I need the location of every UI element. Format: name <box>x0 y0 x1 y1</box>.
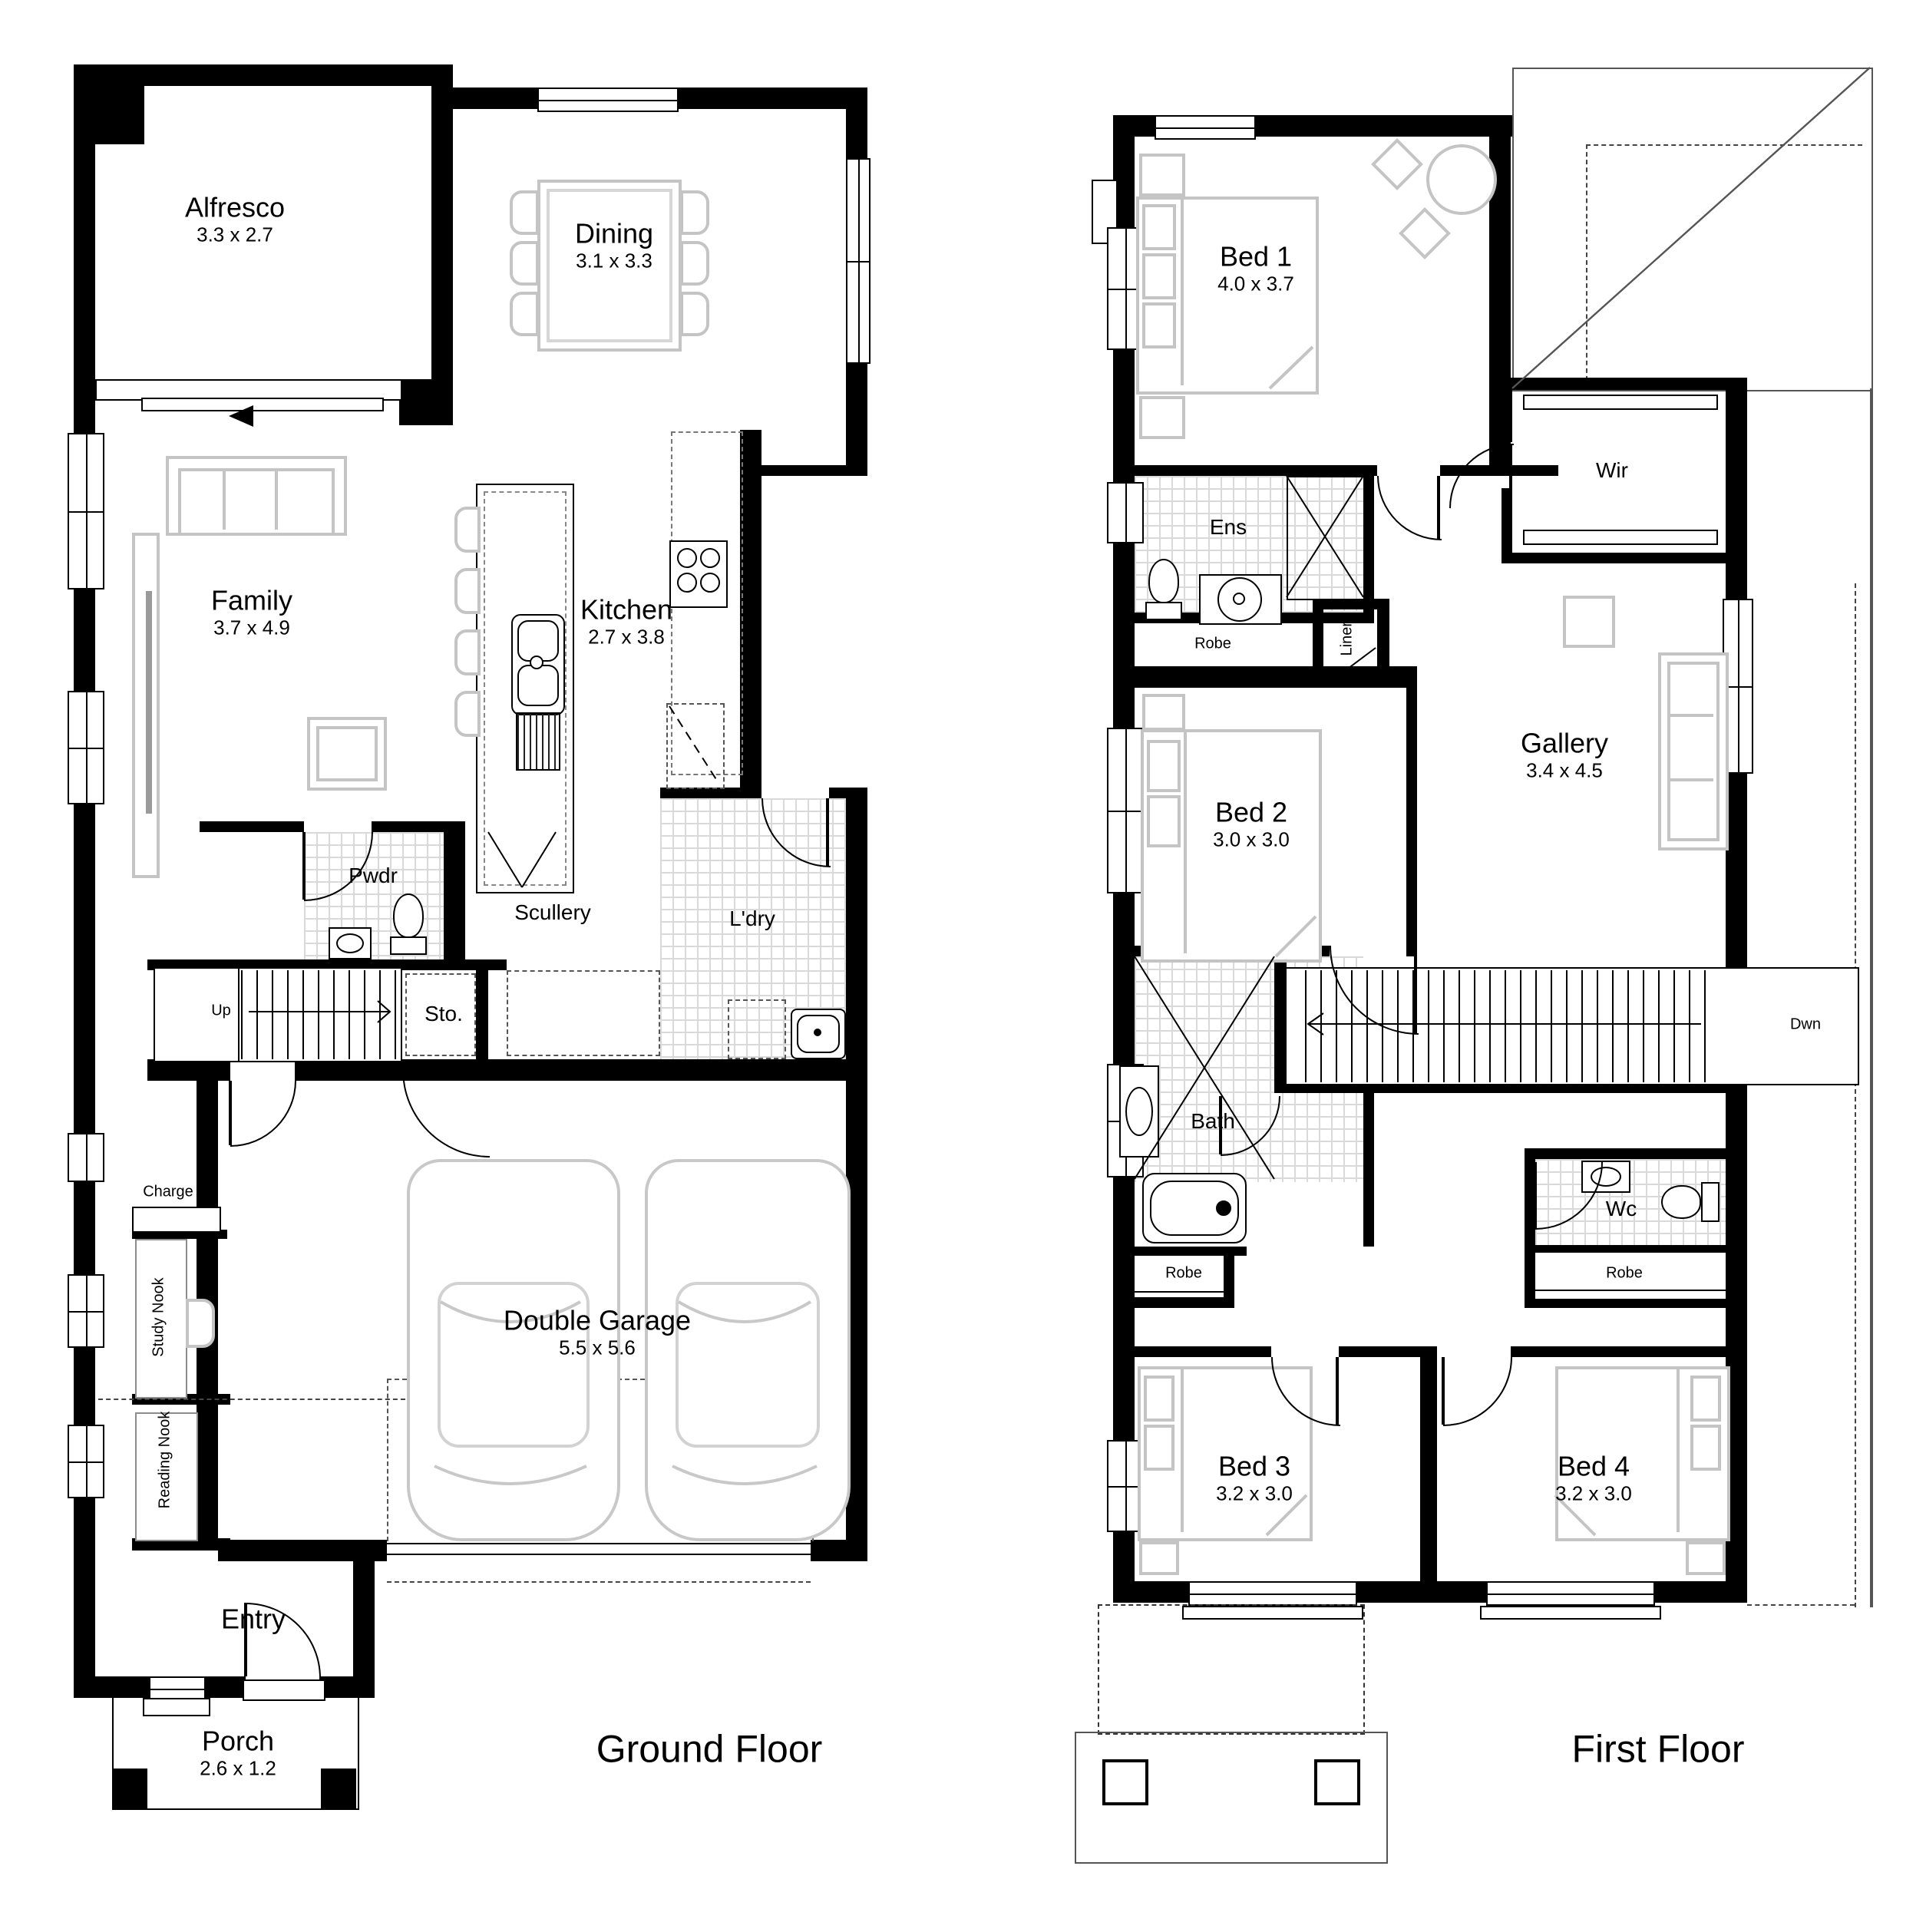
window-sill <box>1480 1606 1661 1620</box>
first-floor-plan: Bed 14.0 x 3.7 Wir Ens Robe Linen Bed 23… <box>0 0 1926 1932</box>
window <box>1107 728 1144 893</box>
kitchen-size: 2.7 x 3.8 <box>580 626 672 649</box>
roof-dashed-line <box>1855 583 1856 1607</box>
robe-label: Robe <box>1606 1266 1643 1283</box>
charge-station-label: Charge St. <box>143 1184 216 1202</box>
robe-label: Robe <box>1194 636 1231 654</box>
couch-seat <box>1667 662 1720 841</box>
roof-edge-line <box>1870 388 1872 1607</box>
garage-size: 5.5 x 5.6 <box>504 1337 691 1360</box>
pillow <box>1690 1425 1721 1471</box>
door-leaf <box>1336 1357 1339 1425</box>
door-leaf <box>1414 946 1417 1033</box>
wall <box>1377 599 1389 677</box>
wall <box>1339 1346 1420 1357</box>
pillow <box>1147 740 1181 792</box>
wall <box>1113 1346 1271 1357</box>
scullery-label: Scullery <box>514 900 591 924</box>
bed2-size: 3.0 x 3.0 <box>1213 829 1290 852</box>
up-label: Up <box>211 1003 231 1021</box>
reading-nook-label: Reading Nook <box>157 1412 175 1509</box>
alfresco-label: Alfresco <box>185 192 285 223</box>
gallery-label: Gallery <box>1521 728 1608 759</box>
tap-icon <box>1233 593 1245 605</box>
wall <box>1313 599 1323 677</box>
vanity-basin <box>1125 1087 1153 1136</box>
wall <box>1113 465 1377 476</box>
wc-label: Wc <box>1606 1196 1637 1220</box>
shower <box>1287 476 1366 600</box>
door-arc <box>1377 476 1442 540</box>
wall <box>1525 1148 1747 1159</box>
bedside-table <box>1139 154 1185 197</box>
wall <box>1525 1245 1726 1253</box>
robe-label: Robe <box>1165 1266 1202 1283</box>
bath-label: Bath <box>1191 1108 1235 1133</box>
wall <box>1511 1346 1747 1357</box>
dwn-label: Dwn <box>1790 1017 1821 1035</box>
porch-label: Porch <box>200 1726 276 1757</box>
pillow <box>1147 795 1181 847</box>
wall <box>1501 378 1747 390</box>
bed2-label: Bed 2 <box>1213 797 1290 828</box>
bed3-label: Bed 3 <box>1216 1451 1293 1482</box>
roof-dashed-line <box>1586 144 1587 388</box>
drain-icon <box>1216 1200 1231 1216</box>
bed3-size: 3.2 x 3.0 <box>1216 1483 1293 1506</box>
window <box>1188 1581 1357 1606</box>
porch-post <box>1314 1759 1360 1805</box>
wall <box>1274 956 1287 1093</box>
pwdr-label: Pwdr <box>349 863 398 887</box>
roof-dashed-line <box>1747 1604 1855 1606</box>
wall <box>1363 1082 1374 1247</box>
plan-canvas: Alfresco3.3 x 2.7 Dining3.1 x 3.3 Family… <box>0 0 1926 1932</box>
dining-size: 3.1 x 3.3 <box>575 250 653 273</box>
family-label: Family <box>211 585 292 616</box>
study-nook-label: Study Nook <box>151 1277 169 1356</box>
bed4-label: Bed 4 <box>1555 1451 1632 1482</box>
wall <box>1501 553 1747 563</box>
floor-plan-sheet: Alfresco3.3 x 2.7 Dining3.1 x 3.3 Family… <box>0 0 1926 1932</box>
wall <box>1525 1299 1747 1308</box>
pillow <box>1142 204 1176 250</box>
dining-label: Dining <box>575 218 653 249</box>
robe-shelf <box>1523 395 1718 410</box>
door-arc <box>1449 444 1514 508</box>
porch-post <box>1102 1759 1148 1805</box>
door-leaf <box>1534 1162 1537 1228</box>
window <box>1155 115 1256 140</box>
window <box>1486 1581 1655 1606</box>
robe-shelf <box>1523 530 1718 545</box>
entry-label: Entry <box>221 1603 286 1635</box>
wir-label: Wir <box>1596 457 1628 482</box>
pillow <box>1144 1425 1174 1471</box>
wall <box>1113 666 1417 688</box>
kitchen-label: Kitchen <box>580 594 672 626</box>
ground-floor-title: Ground Floor <box>596 1728 823 1772</box>
wall <box>1726 378 1747 563</box>
porch-size: 2.6 x 1.2 <box>200 1758 276 1781</box>
garage-label: Double Garage <box>504 1305 691 1336</box>
ldry-label: L'dry <box>729 906 775 930</box>
bedside-table <box>1142 694 1185 731</box>
door-arc <box>1443 1357 1512 1426</box>
wall <box>1420 1346 1437 1581</box>
pillow <box>1144 1376 1174 1422</box>
alfresco-size: 3.3 x 2.7 <box>185 224 285 247</box>
roof-dashed-line <box>1586 144 1862 146</box>
pillow <box>1142 253 1176 299</box>
wall <box>1501 390 1512 442</box>
roof-gable-outline <box>1512 68 1873 391</box>
door-leaf <box>1437 476 1440 539</box>
toilet-icon <box>1661 1185 1701 1219</box>
bedside-table <box>1139 1541 1179 1575</box>
toilet-icon <box>1701 1182 1720 1222</box>
ens-label: Ens <box>1210 514 1247 539</box>
cushion-icon <box>1371 138 1423 190</box>
pillow <box>1690 1376 1721 1422</box>
family-size: 3.7 x 4.9 <box>211 617 292 640</box>
linen-label: Linen <box>1340 619 1357 656</box>
door-leaf <box>1509 444 1512 507</box>
pillow <box>1142 302 1176 348</box>
toilet-icon <box>1148 559 1179 603</box>
sto-label: Sto. <box>425 1001 463 1025</box>
window <box>1107 482 1144 543</box>
rug-icon <box>1426 144 1497 215</box>
first-floor-title: First Floor <box>1572 1728 1745 1772</box>
toilet-icon <box>1145 602 1182 620</box>
bedside-table <box>1139 396 1185 439</box>
bed4-size: 3.2 x 3.0 <box>1555 1483 1632 1506</box>
bedside-table <box>1686 1541 1726 1575</box>
porch-roof-dashed <box>1098 1604 1365 1735</box>
bed1-label: Bed 1 <box>1217 241 1294 272</box>
wall <box>1113 1297 1234 1308</box>
wall <box>1406 677 1417 956</box>
side-table <box>1563 596 1615 648</box>
cushion-icon <box>1399 207 1451 259</box>
door-leaf <box>1442 1357 1445 1425</box>
bed1-size: 4.0 x 3.7 <box>1217 273 1294 296</box>
gallery-size: 3.4 x 4.5 <box>1521 760 1608 783</box>
